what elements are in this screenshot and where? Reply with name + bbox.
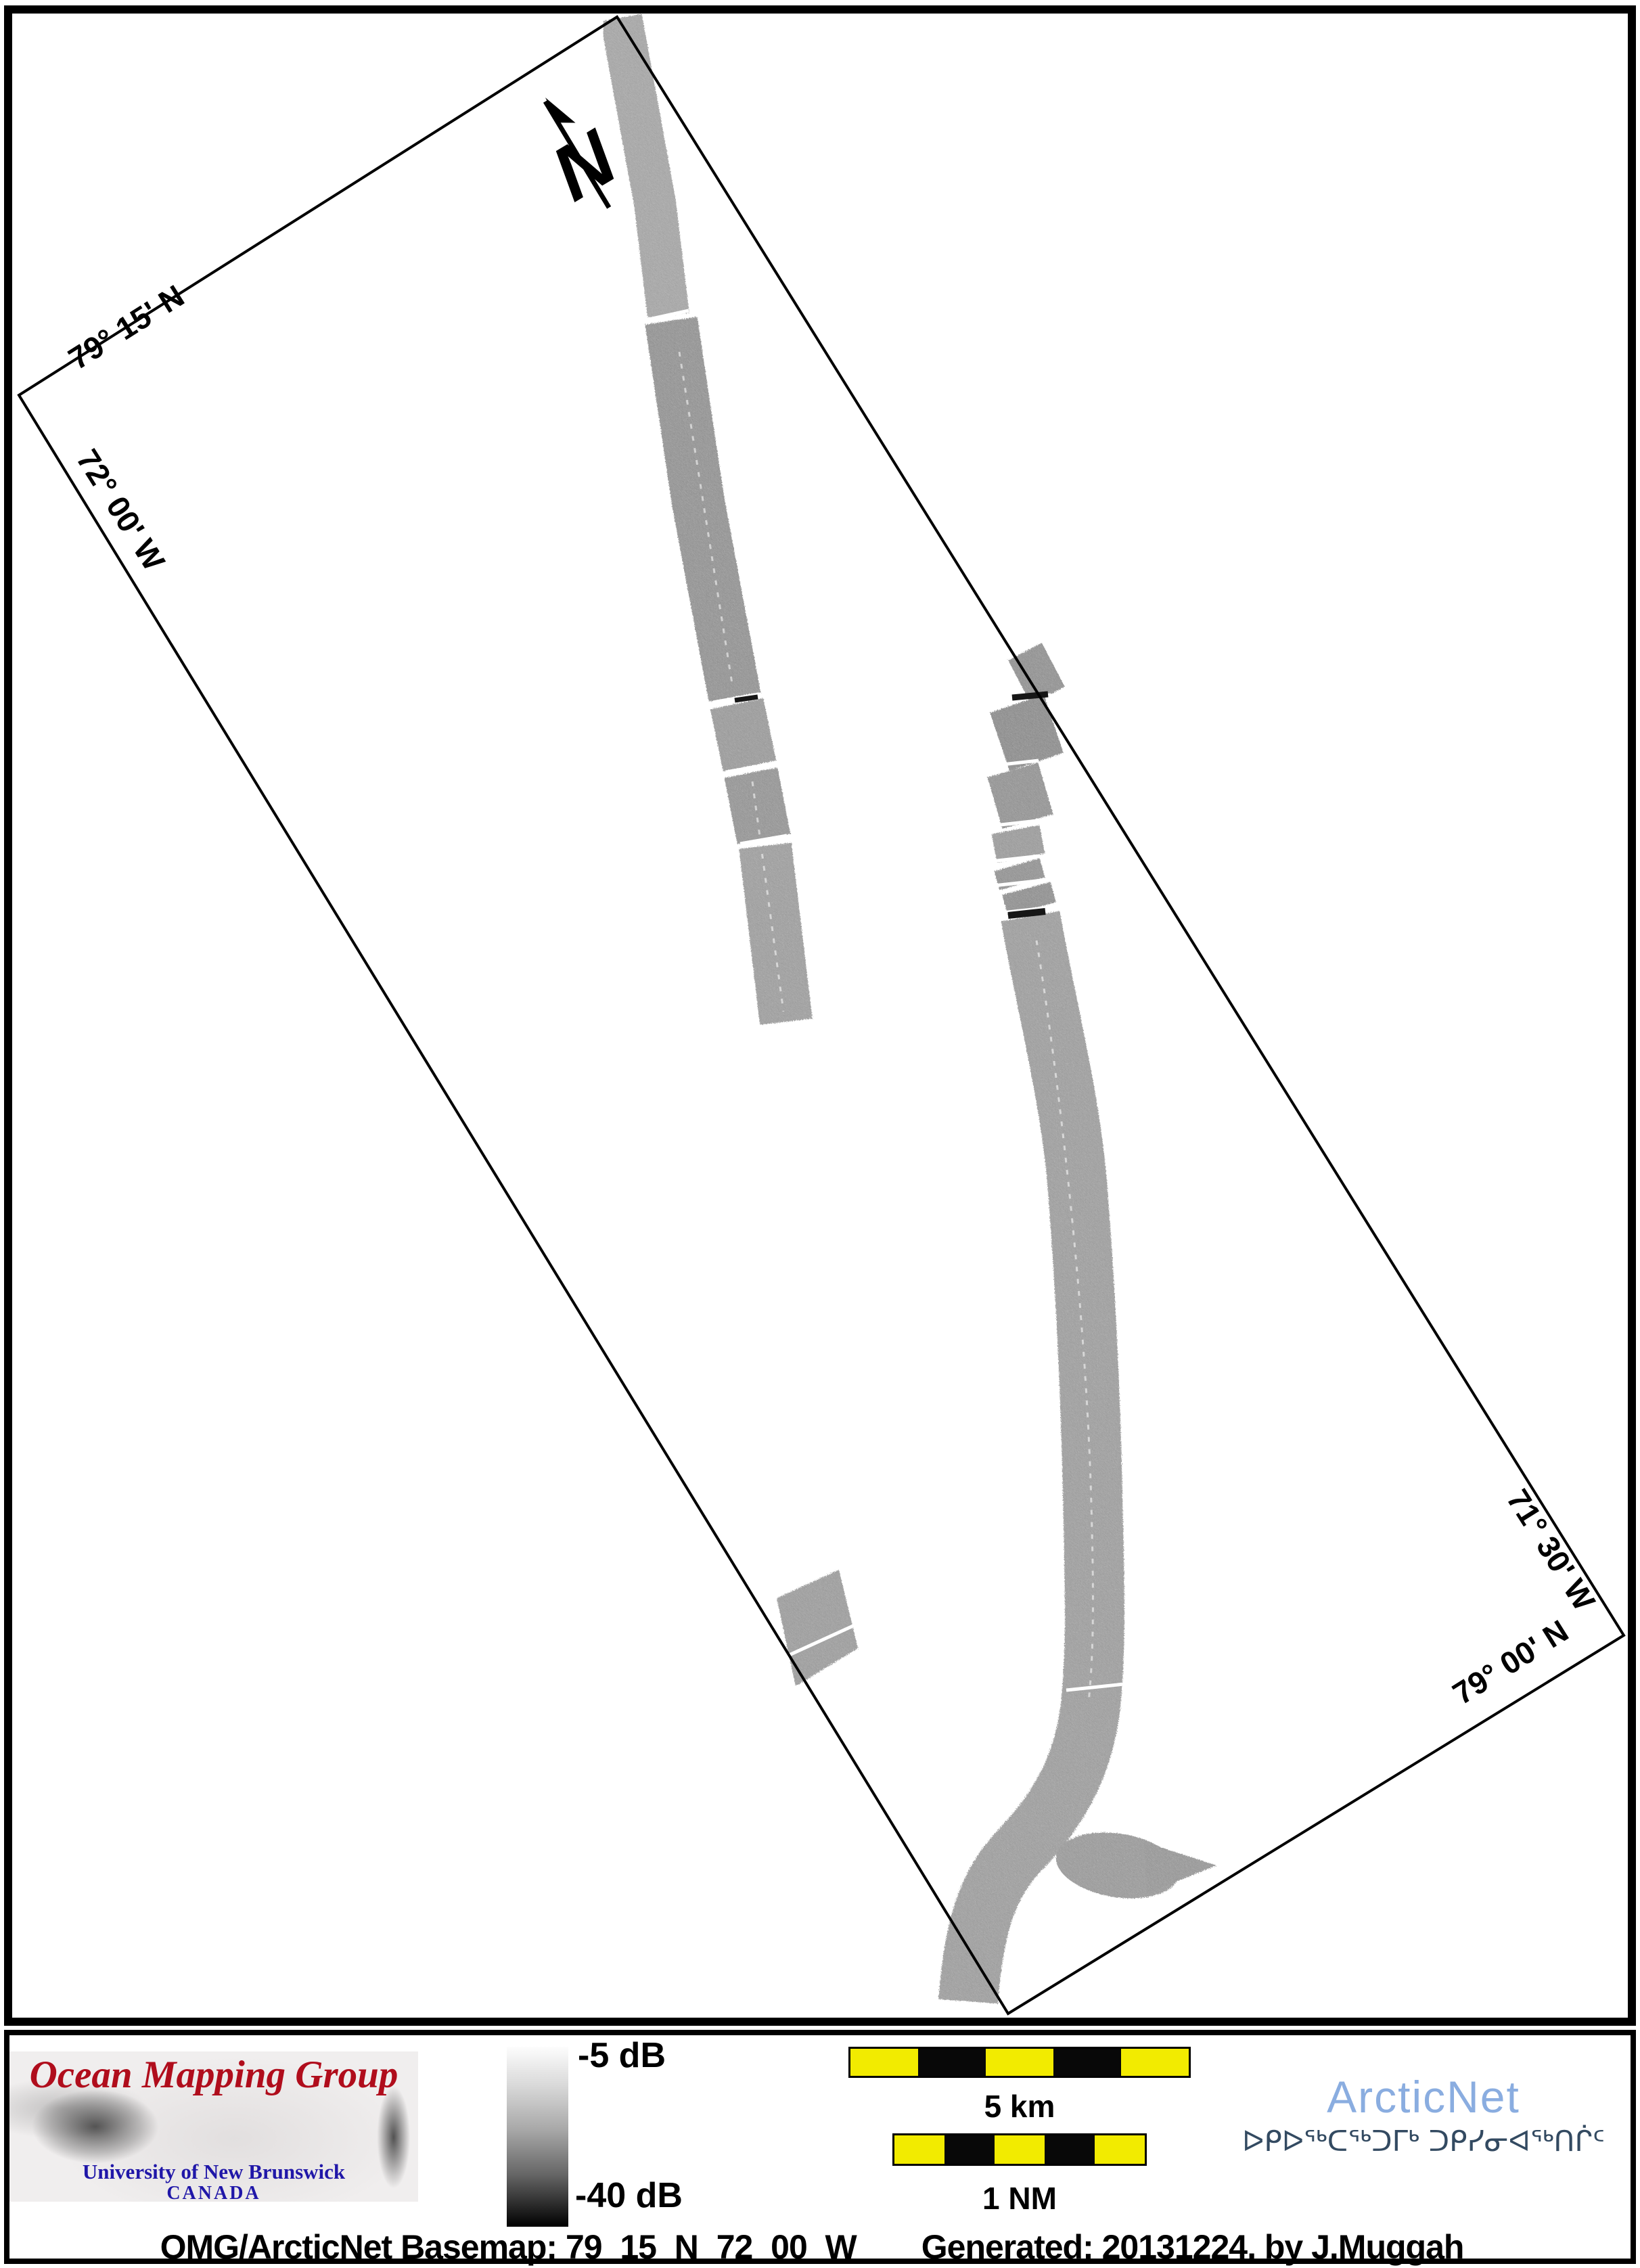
omg-logo-title: Ocean Mapping Group bbox=[9, 2053, 418, 2097]
scalebar-segment bbox=[894, 2135, 944, 2164]
colorbar-label-top: -5 dB bbox=[578, 2038, 666, 2073]
scalebar-segment bbox=[1053, 2049, 1121, 2076]
scalebar-segment bbox=[918, 2049, 986, 2076]
omg-logo-country: CANADA bbox=[9, 2183, 418, 2202]
caption-generated: Generated: 20131224, by J.Muggah bbox=[921, 2228, 1464, 2266]
scalebar-km bbox=[848, 2047, 1191, 2078]
colorbar-label-bottom: -40 dB bbox=[575, 2178, 683, 2213]
scalebar-segment bbox=[1045, 2135, 1095, 2164]
scalebar-nm-label: 1 NM bbox=[892, 2180, 1147, 2217]
arcticnet-wordmark: ArcticNet bbox=[1193, 2073, 1640, 2120]
omg-logo-university: University of New Brunswick bbox=[9, 2160, 418, 2184]
map-caption: OMG/ArcticNet Basemap: 79_15_N_72_00_WGe… bbox=[0, 2227, 1625, 2267]
scalebar-segment bbox=[995, 2135, 1045, 2164]
basemap-sheet: 79° 15' N 72° 00' W 71° 30' W 79° 00' N … bbox=[0, 0, 1640, 2268]
backscatter-colorbar bbox=[507, 2047, 568, 2227]
scalebar-km-label: 5 km bbox=[848, 2088, 1191, 2125]
map-panel bbox=[4, 5, 1636, 2026]
scalebar-segment bbox=[850, 2049, 918, 2076]
scalebar-segment bbox=[1121, 2049, 1189, 2076]
omg-logo: Ocean Mapping Group University of New Br… bbox=[9, 2051, 418, 2202]
caption-basemap-id: OMG/ArcticNet Basemap: 79_15_N_72_00_W bbox=[160, 2228, 857, 2266]
scalebar-segment bbox=[1095, 2135, 1145, 2164]
scalebar-segment bbox=[944, 2135, 995, 2164]
arcticnet-inuktitut-text: ᐅᑭᐅᖅᑕᖅᑐᒥᒃ ᑐᑭᓯᓂᐊᖅᑎᒌᑦ bbox=[1193, 2125, 1640, 2158]
footer-panel: Ocean Mapping Group University of New Br… bbox=[4, 2030, 1636, 2264]
scalebar-nm bbox=[892, 2133, 1147, 2166]
arcticnet-logo: ArcticNet ᐅᑭᐅᖅᑕᖅᑐᒥᒃ ᑐᑭᓯᓂᐊᖅᑎᒌᑦ bbox=[1193, 2073, 1640, 2158]
scalebar-segment bbox=[986, 2049, 1053, 2076]
